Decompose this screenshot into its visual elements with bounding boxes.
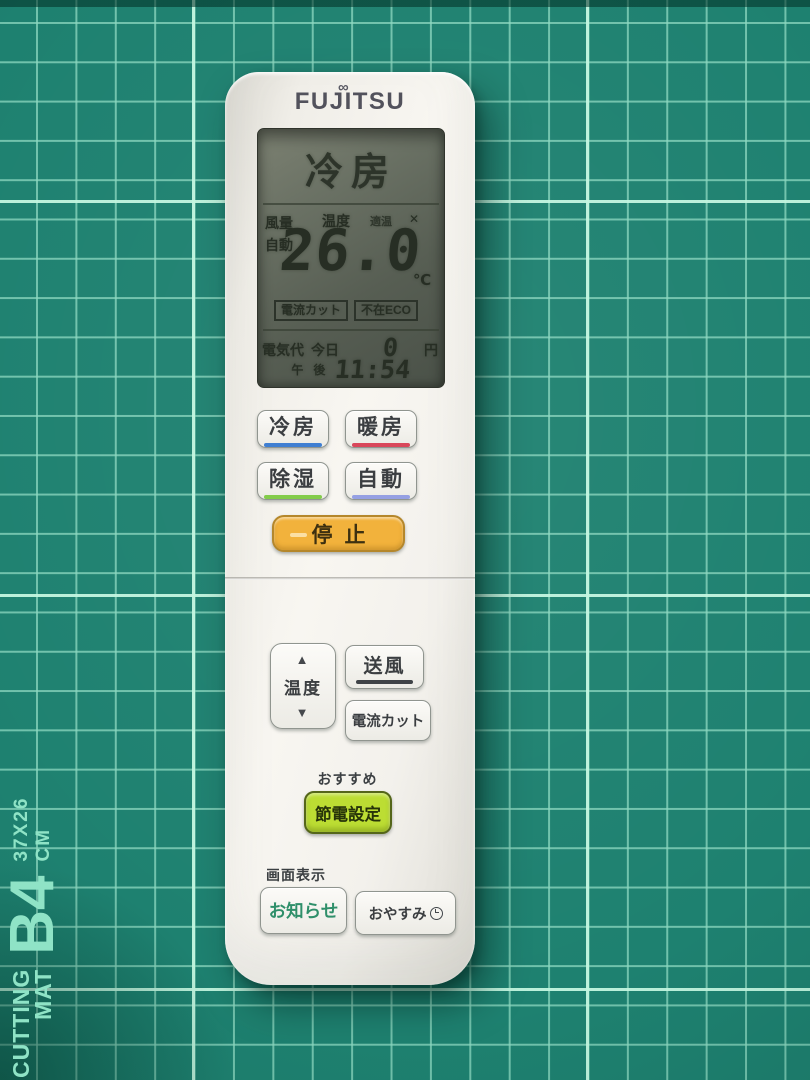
mat-label-line2: MAT bbox=[33, 969, 55, 1078]
heat-mode-button[interactable]: 暖房 bbox=[345, 410, 417, 448]
dry-mode-button[interactable]: 除湿 bbox=[257, 462, 329, 500]
cool-underline bbox=[264, 443, 321, 447]
remote-seam bbox=[225, 577, 475, 580]
clock-icon bbox=[430, 907, 443, 920]
mat-dimensions-label: 37X26 CM bbox=[11, 797, 55, 862]
notice-button[interactable]: お知らせ bbox=[260, 887, 347, 934]
sleep-button[interactable]: おやすみ bbox=[355, 891, 456, 935]
heat-underline bbox=[352, 443, 409, 447]
lcd-ampm-second: 後 bbox=[313, 361, 325, 382]
temperature-label: 温度 bbox=[284, 674, 322, 699]
lcd-divider bbox=[263, 329, 439, 331]
current-cut-button[interactable]: 電流カット bbox=[345, 700, 431, 741]
dry-underline bbox=[264, 495, 321, 499]
lcd-divider bbox=[263, 203, 439, 205]
auto-underline bbox=[352, 495, 409, 499]
stop-button[interactable]: 停止 bbox=[272, 515, 405, 552]
sleep-label: おやすみ bbox=[369, 903, 427, 924]
lcd-ampm-first: 午 bbox=[291, 361, 303, 382]
eco-header-label: おすすめ bbox=[260, 769, 435, 789]
lcd-time-row: 午 後 11:54 bbox=[258, 357, 444, 382]
lcd-badge-absence-eco: 不在ECO bbox=[354, 300, 418, 321]
notice-label: お知らせ bbox=[269, 898, 339, 923]
cool-mode-button[interactable]: 冷房 bbox=[257, 410, 329, 448]
lcd-time-value: 11:54 bbox=[334, 357, 411, 382]
stop-label: 停止 bbox=[300, 519, 378, 549]
mat-label: CUTTING MAT B4 37X26 CM bbox=[2, 806, 64, 1078]
mat-size-label: B4 bbox=[2, 876, 64, 955]
temp-down-icon[interactable]: ▼ bbox=[296, 706, 311, 719]
brand-name: FUJITSU bbox=[295, 88, 406, 115]
power-save-button[interactable]: 節電設定 bbox=[304, 791, 392, 834]
fan-button[interactable]: 送風 bbox=[345, 645, 424, 689]
lcd-temperature-unit: ℃ bbox=[413, 271, 431, 289]
current-cut-label: 電流カット bbox=[352, 710, 425, 731]
stop-dash-icon bbox=[290, 533, 307, 537]
auto-mode-button[interactable]: 自動 bbox=[345, 462, 417, 500]
lcd-badge-current-cut: 電流カット bbox=[274, 300, 348, 321]
fan-label: 送風 bbox=[363, 651, 405, 678]
temp-up-icon[interactable]: ▲ bbox=[296, 653, 311, 666]
brand-logo: FUJITSU ∞ bbox=[225, 88, 475, 116]
mat-label-cutting-mat: CUTTING MAT bbox=[11, 969, 55, 1078]
dry-mode-label: 除湿 bbox=[269, 463, 317, 493]
cool-mode-label: 冷房 bbox=[269, 411, 317, 441]
lcd-display: 冷房 風量 自動 温度 適温 ✕ 26.0 ℃ 電流カット 不在ECO 電気代 … bbox=[257, 128, 445, 388]
display-header-label: 画面表示 bbox=[266, 865, 326, 885]
temperature-rocker[interactable]: ▲ 温度 ▼ bbox=[270, 643, 336, 729]
lcd-temperature-value: 26.0 bbox=[278, 223, 424, 280]
heat-mode-label: 暖房 bbox=[357, 411, 405, 441]
auto-mode-label: 自動 bbox=[357, 463, 405, 493]
lcd-badges: 電流カット 不在ECO bbox=[274, 300, 418, 321]
remote-control: FUJITSU ∞ 冷房 風量 自動 温度 適温 ✕ 26.0 ℃ 電流カット … bbox=[225, 72, 475, 985]
fan-underline bbox=[356, 680, 413, 684]
infinity-icon: ∞ bbox=[338, 79, 349, 96]
power-save-label: 節電設定 bbox=[315, 801, 381, 825]
lcd-mode-indicator: 冷房 bbox=[258, 141, 444, 196]
